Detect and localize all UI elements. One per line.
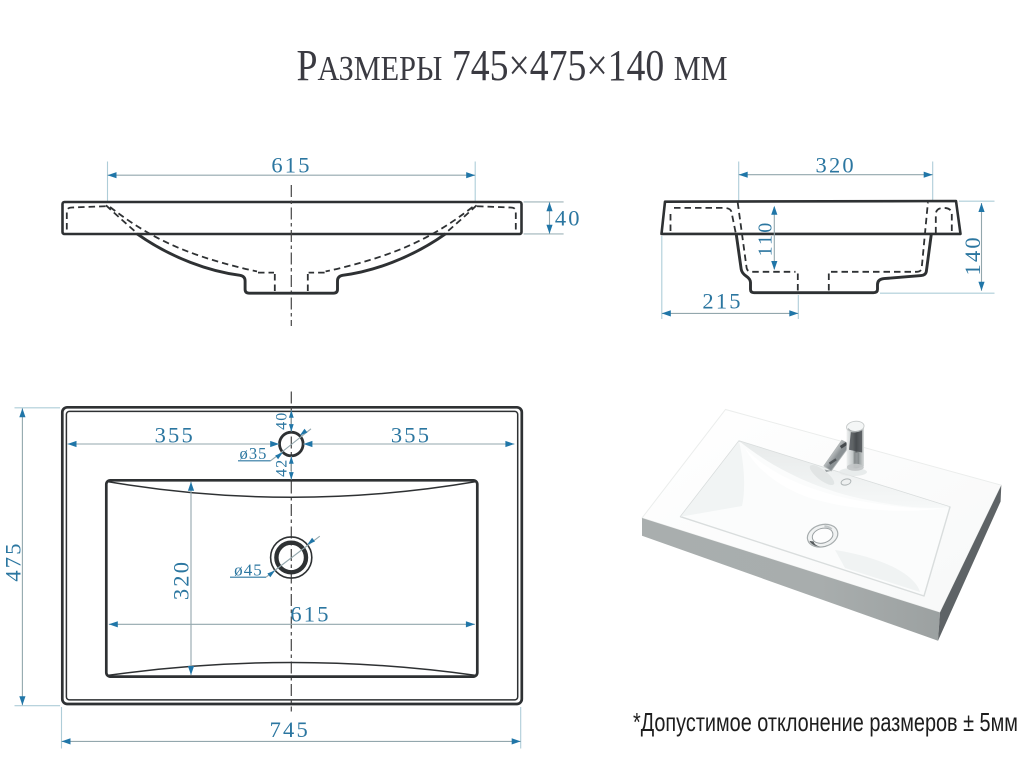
svg-text:320: 320 [816, 152, 856, 177]
svg-text:42: 42 [273, 459, 290, 477]
svg-text:475: 475 [0, 541, 25, 581]
svg-text:355: 355 [391, 423, 431, 448]
svg-text:745: 745 [270, 717, 310, 742]
svg-text:215: 215 [702, 289, 742, 314]
svg-text:ø35: ø35 [239, 444, 267, 463]
svg-text:40: 40 [273, 412, 290, 430]
svg-text:*Допустимое отклонение размеро: *Допустимое отклонение размеров ± 5мм [633, 708, 1018, 737]
svg-text:615: 615 [271, 153, 311, 178]
svg-text:615: 615 [290, 602, 330, 627]
svg-text:40: 40 [555, 205, 582, 230]
svg-text:140: 140 [960, 235, 985, 275]
svg-text:110: 110 [754, 221, 776, 257]
svg-text:355: 355 [155, 423, 195, 448]
svg-text:320: 320 [168, 560, 193, 600]
